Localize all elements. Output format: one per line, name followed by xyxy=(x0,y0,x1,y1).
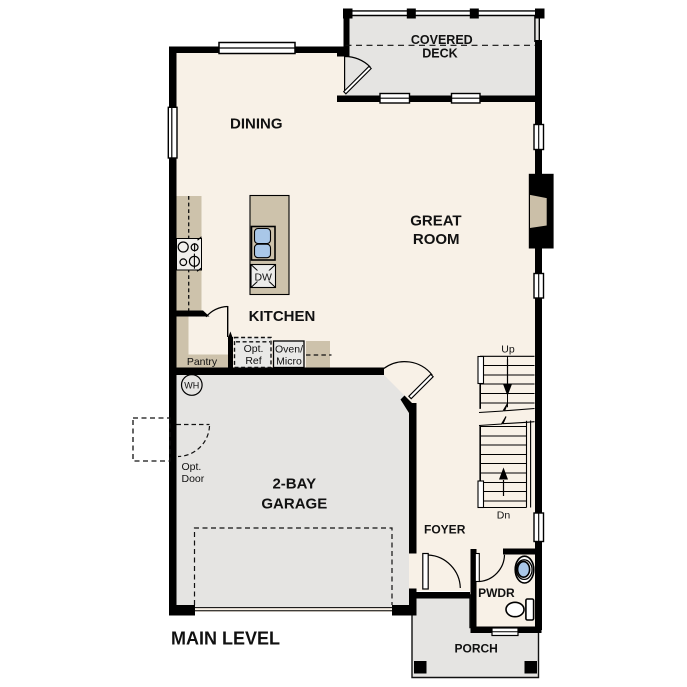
svg-text:GARAGE: GARAGE xyxy=(261,495,327,512)
svg-text:DECK: DECK xyxy=(422,47,457,61)
svg-text:Door: Door xyxy=(182,473,205,485)
svg-text:Oven/: Oven/ xyxy=(275,344,303,356)
svg-text:Micro: Micro xyxy=(276,356,302,368)
svg-text:ROOM: ROOM xyxy=(413,231,460,248)
svg-text:COVERED: COVERED xyxy=(411,33,473,47)
svg-text:GREAT: GREAT xyxy=(410,212,461,229)
svg-text:Opt.: Opt. xyxy=(182,461,202,473)
svg-text:FOYER: FOYER xyxy=(424,523,466,537)
svg-text:Dn: Dn xyxy=(497,509,511,521)
svg-text:PWDR: PWDR xyxy=(478,586,515,600)
svg-text:Up: Up xyxy=(501,343,515,355)
svg-text:DW: DW xyxy=(254,271,272,283)
svg-text:DINING: DINING xyxy=(230,116,283,133)
svg-text:Opt.: Opt. xyxy=(244,343,264,355)
svg-text:WH: WH xyxy=(184,380,199,390)
svg-text:KITCHEN: KITCHEN xyxy=(249,308,316,325)
svg-text:PORCH: PORCH xyxy=(455,642,498,656)
svg-text:Ref: Ref xyxy=(245,355,261,367)
svg-text:Pantry: Pantry xyxy=(187,356,218,368)
svg-text:MAIN LEVEL: MAIN LEVEL xyxy=(171,629,280,649)
svg-text:2-BAY: 2-BAY xyxy=(272,476,316,493)
